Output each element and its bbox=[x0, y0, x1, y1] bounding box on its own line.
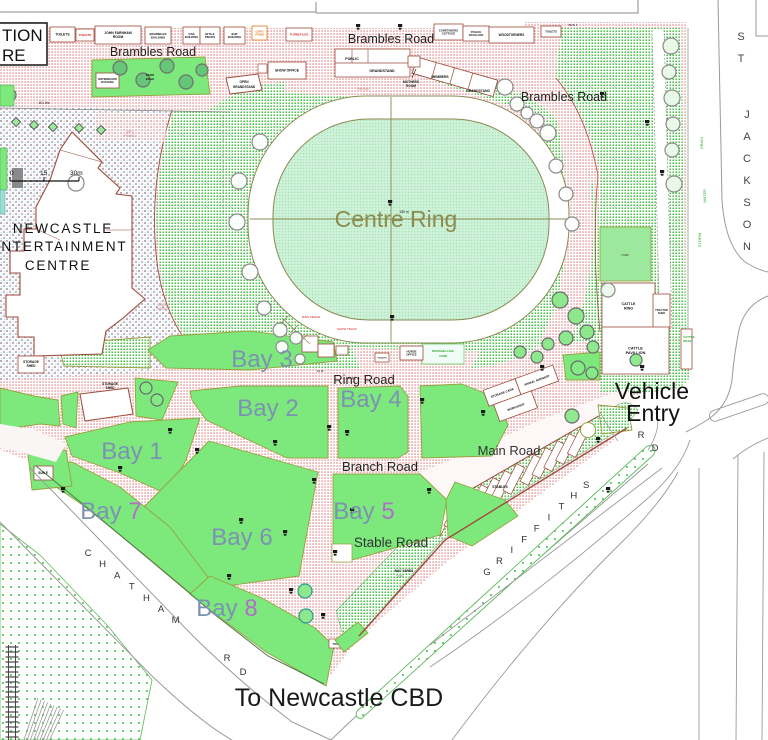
svg-text:WATER: WATER bbox=[702, 189, 707, 203]
svg-text:Brambles Road: Brambles Road bbox=[348, 32, 434, 46]
svg-text:SHOW OFFICE: SHOW OFFICE bbox=[275, 69, 300, 73]
svg-text:D: D bbox=[240, 667, 247, 678]
svg-text:A: A bbox=[743, 131, 751, 143]
svg-text:101.5m: 101.5m bbox=[38, 101, 49, 105]
svg-text:SHED: SHED bbox=[27, 364, 37, 368]
svg-text:ROOM: ROOM bbox=[406, 84, 416, 88]
svg-text:PAVILLION: PAVILLION bbox=[469, 33, 484, 37]
svg-text:RING FENCE: RING FENCE bbox=[302, 315, 321, 319]
svg-text:BUILDING: BUILDING bbox=[151, 35, 166, 39]
svg-text:R: R bbox=[638, 430, 645, 441]
svg-text:H: H bbox=[570, 491, 577, 502]
svg-text:GRANDSTAND: GRANDSTAND bbox=[369, 69, 395, 73]
svg-text:STABLES: STABLES bbox=[492, 485, 508, 489]
svg-text:150 m: 150 m bbox=[399, 210, 409, 214]
svg-text:BUILDING: BUILDING bbox=[228, 35, 242, 39]
svg-text:MEMBERS: MEMBERS bbox=[431, 75, 449, 79]
svg-text:RING: RING bbox=[624, 306, 633, 310]
svg-text:D: D bbox=[652, 443, 659, 454]
svg-text:EDGE: EDGE bbox=[146, 77, 155, 81]
svg-text:Main Road: Main Road bbox=[478, 443, 541, 458]
svg-text:TURF: TURF bbox=[396, 574, 404, 578]
svg-text:BUILDING: BUILDING bbox=[101, 80, 114, 84]
svg-text:TURNSTILES: TURNSTILES bbox=[290, 33, 309, 37]
svg-text:SHOW TRACK: SHOW TRACK bbox=[337, 327, 357, 331]
svg-text:Bay 2: Bay 2 bbox=[237, 395, 298, 422]
svg-text:YARD: YARD bbox=[439, 354, 448, 358]
svg-text:WOODTURNERS: WOODTURNERS bbox=[499, 33, 525, 37]
svg-text:SHED: SHED bbox=[658, 311, 665, 315]
svg-text:NAC YARDS: NAC YARDS bbox=[395, 569, 414, 573]
svg-text:O: O bbox=[743, 219, 752, 231]
svg-text:15: 15 bbox=[40, 170, 48, 177]
svg-text:COTTAGE: COTTAGE bbox=[442, 32, 456, 36]
svg-text:T: T bbox=[558, 502, 564, 513]
svg-text:GRANDSTAND: GRANDSTAND bbox=[466, 89, 490, 93]
svg-text:Ring Road: Ring Road bbox=[333, 372, 394, 387]
svg-text:Centre Ring: Centre Ring bbox=[335, 206, 458, 232]
svg-text:TURF: TURF bbox=[621, 253, 629, 257]
svg-text:TION: TION bbox=[2, 26, 43, 45]
svg-text:PIECES: PIECES bbox=[205, 35, 215, 39]
svg-text:PAVING: PAVING bbox=[156, 307, 168, 311]
svg-text:S: S bbox=[583, 480, 589, 491]
svg-text:PAVING: PAVING bbox=[357, 87, 370, 91]
svg-text:Entry: Entry bbox=[626, 400, 680, 426]
svg-text:MARSHELLING: MARSHELLING bbox=[432, 349, 455, 353]
svg-text:Bay 1: Bay 1 bbox=[101, 438, 162, 465]
svg-text:12 M: 12 M bbox=[317, 369, 324, 373]
svg-text:T: T bbox=[129, 582, 135, 593]
svg-text:S: S bbox=[737, 31, 744, 43]
svg-text:SHED: SHED bbox=[106, 386, 116, 390]
svg-text:K: K bbox=[743, 175, 751, 187]
svg-text:30m: 30m bbox=[70, 170, 83, 177]
svg-text:Bay 5: Bay 5 bbox=[333, 498, 394, 525]
svg-text:Bay 8: Bay 8 bbox=[196, 595, 257, 622]
svg-text:CATTLE: CATTLE bbox=[628, 347, 643, 351]
svg-text:GRANDSTAND: GRANDSTAND bbox=[233, 85, 256, 89]
svg-text:Stable Road: Stable Road bbox=[354, 535, 428, 550]
svg-text:Bay 3: Bay 3 bbox=[231, 346, 292, 373]
svg-text:PAVING: PAVING bbox=[124, 134, 136, 138]
svg-text:STAND: STAND bbox=[255, 33, 264, 37]
svg-text:TOILETS: TOILETS bbox=[377, 357, 387, 359]
svg-text:H: H bbox=[143, 593, 150, 604]
svg-text:OFFICE: OFFICE bbox=[406, 353, 416, 357]
svg-text:TOILETS: TOILETS bbox=[79, 33, 92, 37]
svg-text:STORM: STORM bbox=[697, 233, 702, 247]
svg-text:DRAIN: DRAIN bbox=[699, 137, 704, 150]
svg-text:Brambles Road: Brambles Road bbox=[110, 45, 196, 59]
svg-text:Bay 7: Bay 7 bbox=[80, 498, 141, 525]
svg-text:BUS 1: BUS 1 bbox=[569, 23, 578, 27]
svg-text:SUB E: SUB E bbox=[38, 471, 48, 475]
svg-text:ROOM: ROOM bbox=[113, 35, 124, 39]
svg-text:F: F bbox=[521, 534, 527, 545]
svg-text:A: A bbox=[158, 604, 165, 615]
svg-text:T: T bbox=[738, 53, 745, 65]
svg-text:RE: RE bbox=[2, 46, 26, 65]
svg-text:C: C bbox=[743, 153, 751, 165]
svg-text:H: H bbox=[99, 559, 106, 570]
svg-text:S: S bbox=[743, 197, 750, 209]
svg-text:J: J bbox=[744, 109, 750, 121]
svg-text:0: 0 bbox=[10, 170, 14, 177]
svg-text:TOILETS: TOILETS bbox=[545, 30, 557, 34]
svg-text:TOILETS: TOILETS bbox=[55, 33, 70, 37]
svg-text:I: I bbox=[510, 545, 513, 556]
svg-text:I: I bbox=[548, 513, 551, 524]
svg-text:CENTRE: CENTRE bbox=[25, 258, 91, 273]
svg-text:ENTERTAINMENT: ENTERTAINMENT bbox=[0, 239, 127, 254]
svg-text:OPEN: OPEN bbox=[239, 80, 249, 84]
svg-text:PUBLIC: PUBLIC bbox=[345, 57, 359, 61]
svg-text:Bay 4: Bay 4 bbox=[340, 386, 401, 413]
svg-text:F: F bbox=[534, 523, 540, 534]
svg-text:C: C bbox=[85, 548, 92, 559]
svg-text:12 M: 12 M bbox=[348, 376, 355, 380]
svg-text:R: R bbox=[224, 653, 231, 664]
svg-text:G: G bbox=[483, 567, 490, 578]
svg-text:WASH: WASH bbox=[683, 339, 692, 343]
svg-text:M: M bbox=[172, 615, 180, 626]
svg-text:BUILDING: BUILDING bbox=[185, 35, 199, 39]
svg-text:A: A bbox=[114, 570, 121, 581]
svg-text:N: N bbox=[743, 241, 751, 253]
svg-text:To Newcastle CBD: To Newcastle CBD bbox=[235, 684, 443, 712]
svg-text:Bay 6: Bay 6 bbox=[211, 524, 272, 551]
svg-text:NEWCASTLE: NEWCASTLE bbox=[13, 221, 113, 236]
svg-text:Brambles Road: Brambles Road bbox=[521, 90, 607, 104]
svg-text:Branch Road: Branch Road bbox=[342, 459, 418, 474]
svg-text:R: R bbox=[496, 556, 503, 567]
